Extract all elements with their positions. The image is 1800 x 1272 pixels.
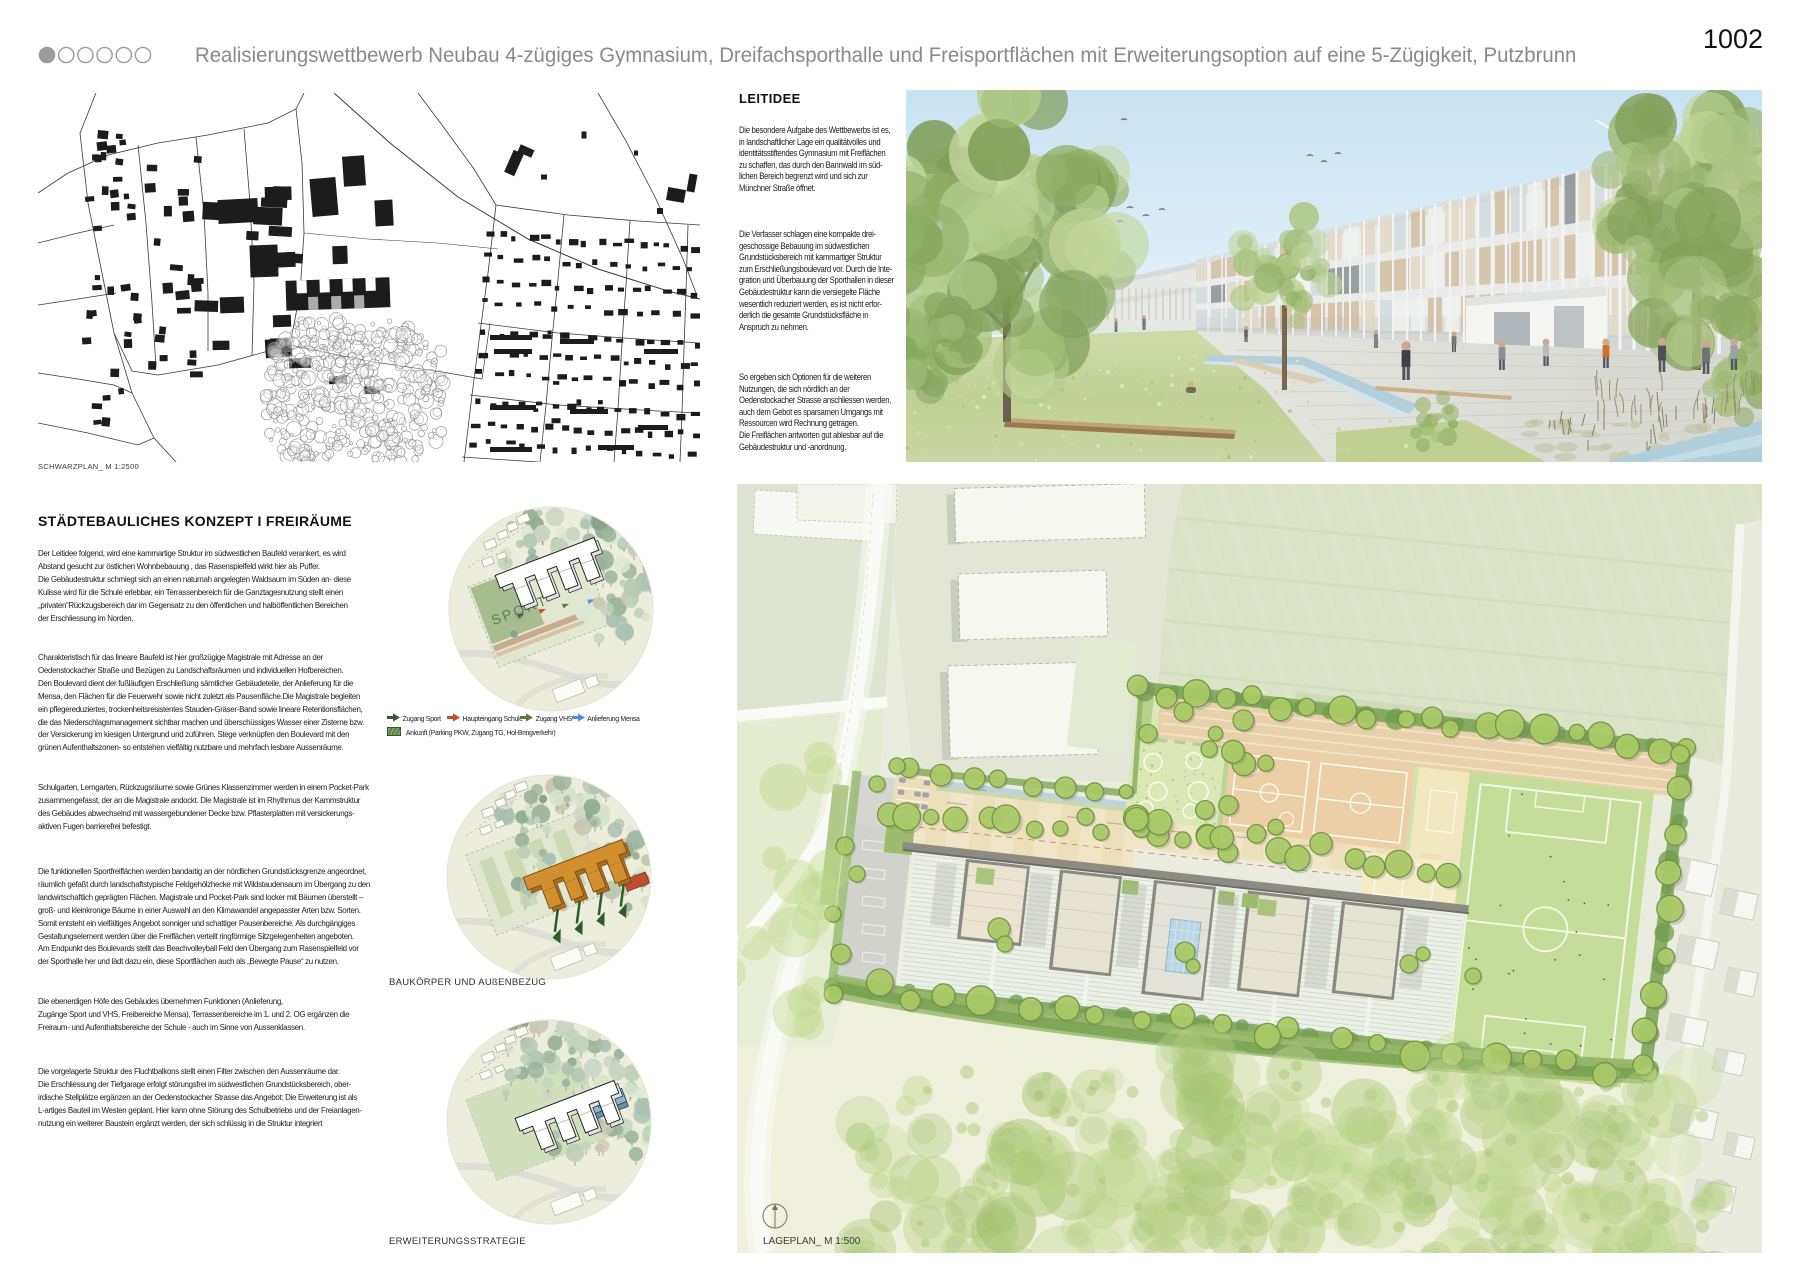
svg-text:LAGEPLAN_ M 1:500: LAGEPLAN_ M 1:500	[763, 1236, 861, 1247]
